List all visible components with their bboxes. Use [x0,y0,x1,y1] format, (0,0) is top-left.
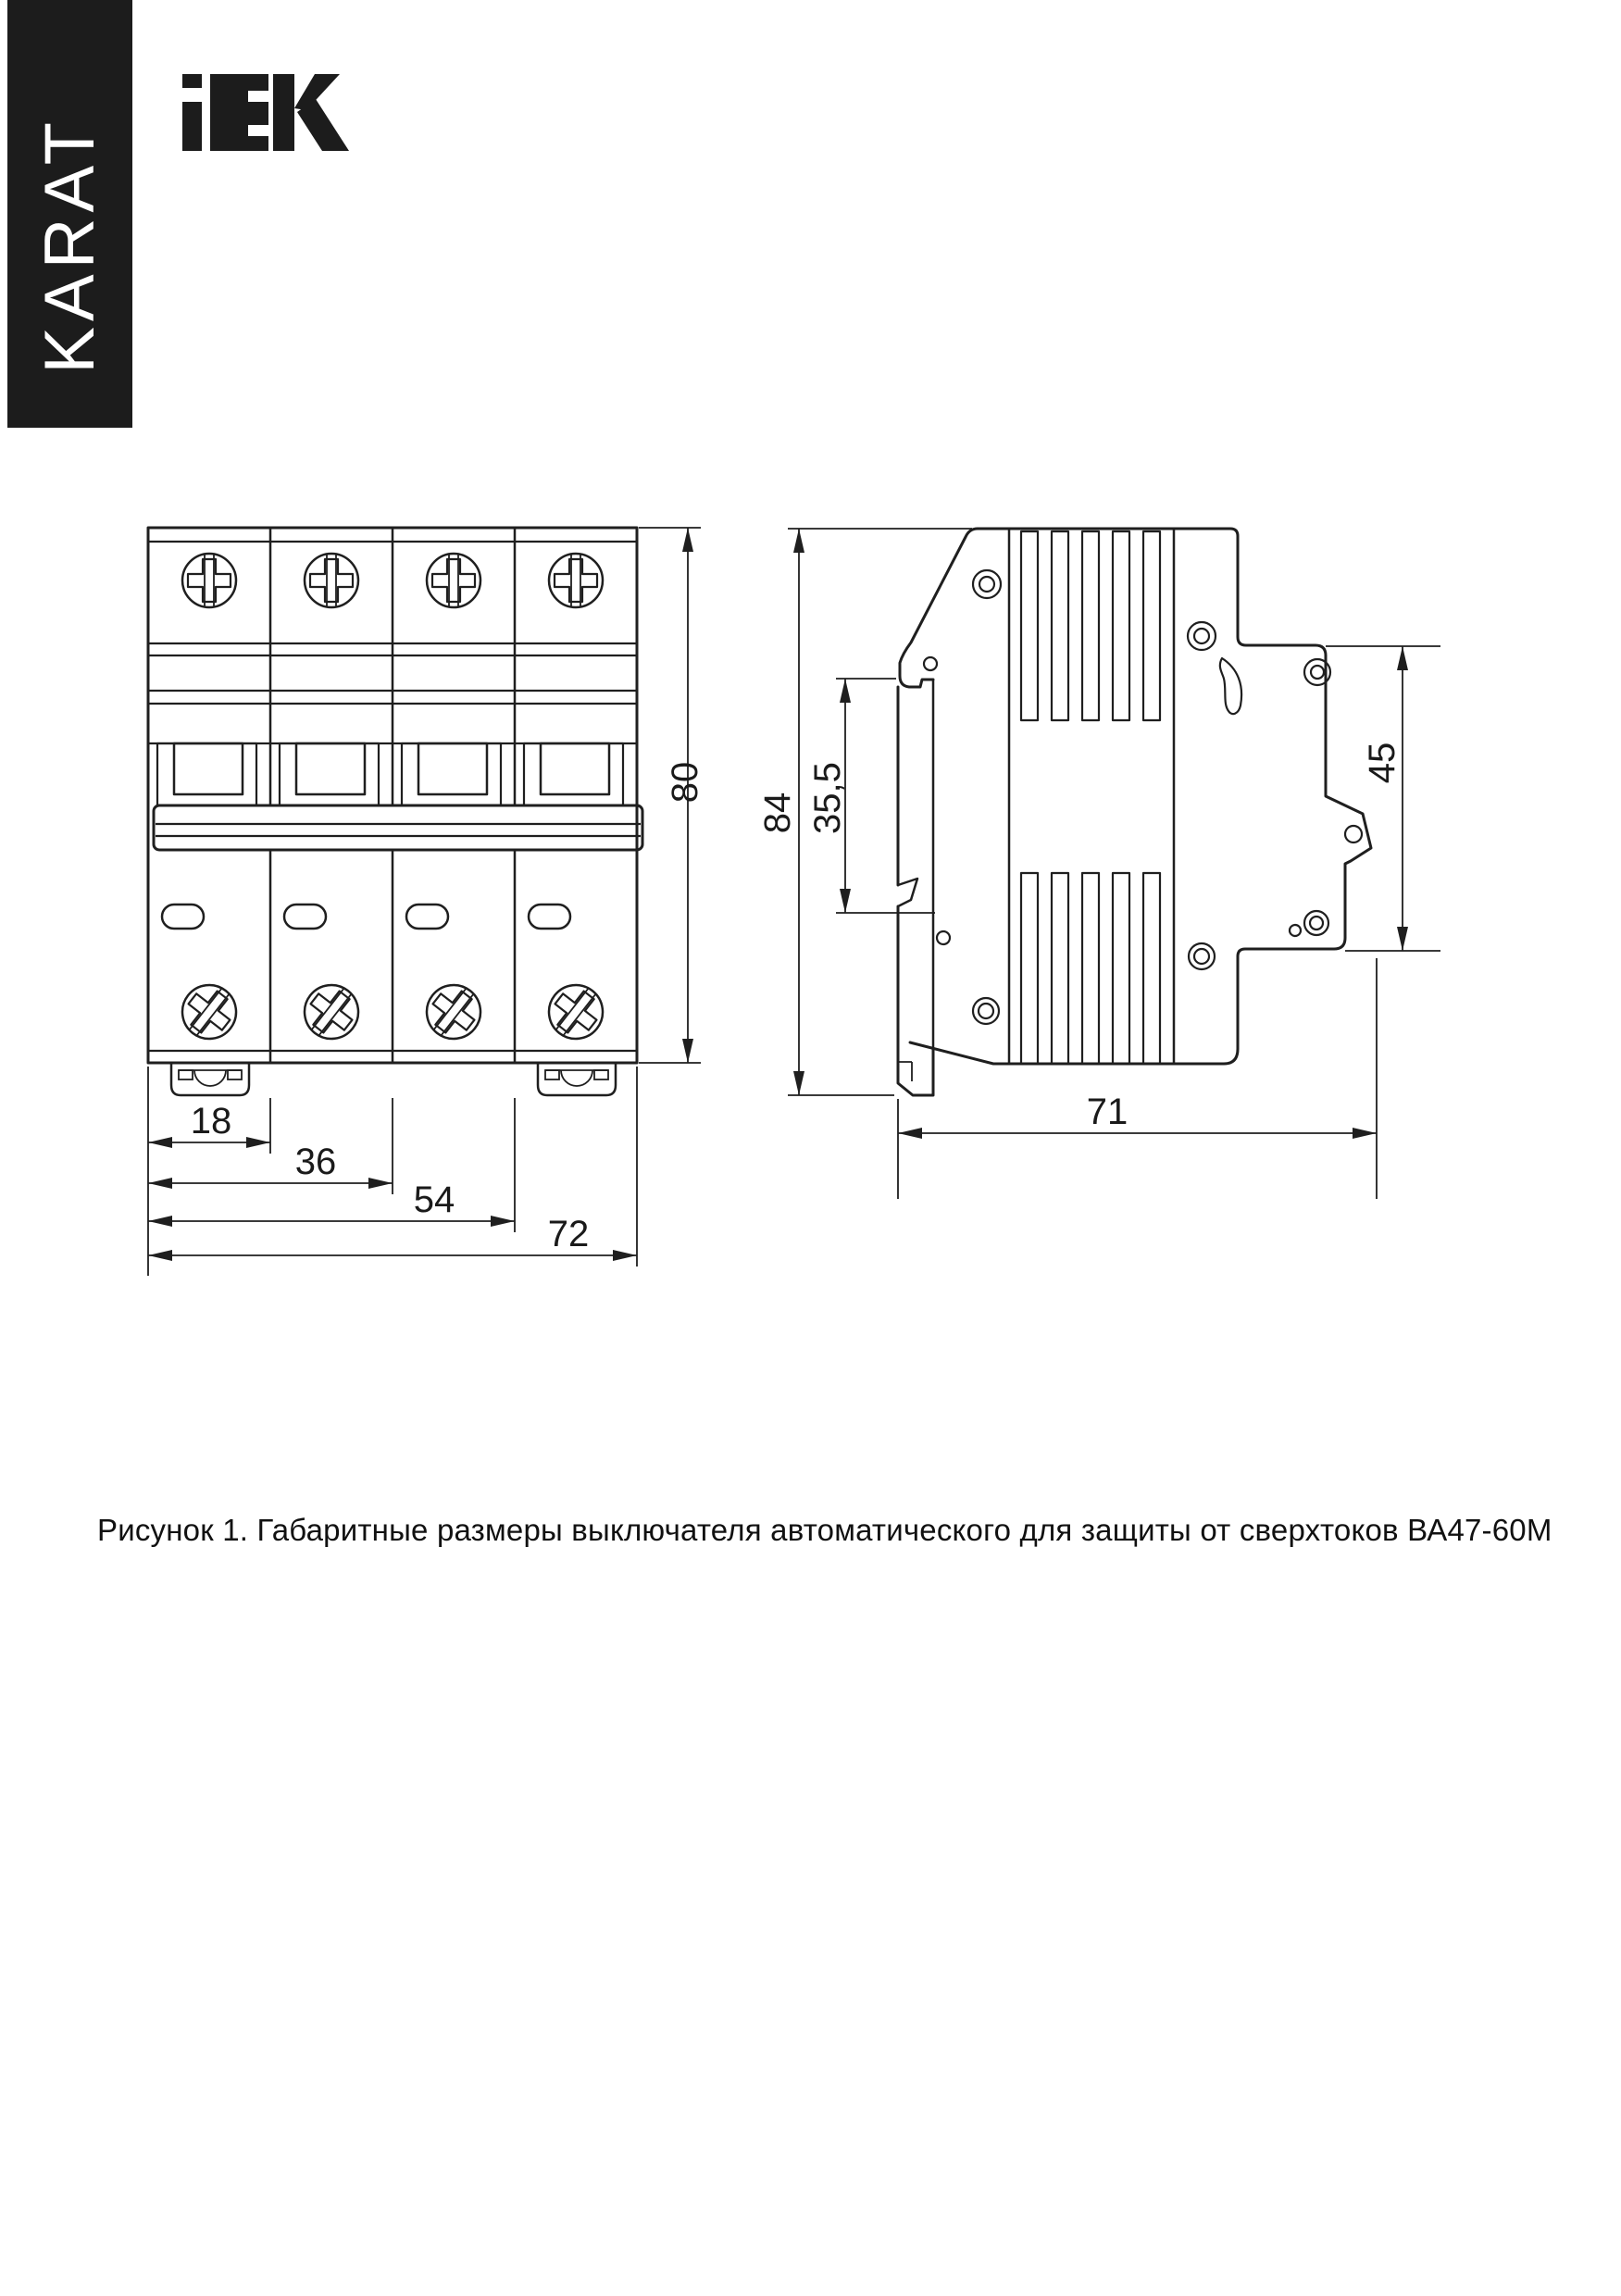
dim-label-18: 18 [191,1101,232,1142]
rivets [937,570,1362,1024]
dim-label-84: 84 [757,792,798,834]
side-view: 84 35,5 45 [757,529,1440,1199]
dim-label-71: 71 [1087,1092,1128,1132]
curved-vent-slot [1220,658,1241,714]
dim-rail-zone: 45 [1326,646,1440,951]
side-case-outline [910,529,1371,1064]
screw-icon [427,554,480,607]
screw-icon [538,974,613,1049]
figure-caption: Рисунок 1. Габаритные размеры выключател… [97,1513,1440,1548]
handle-tie-bar [154,805,642,850]
screw-icon [171,974,246,1049]
screw-icon [182,554,236,607]
indicator-windows [162,905,570,929]
side-toggle-lever [900,529,978,687]
dim-label-35-5: 35,5 [807,762,848,834]
dim-label-36: 36 [295,1142,337,1182]
document-page: KARAT [0,0,1621,2296]
dim-label-72: 72 [548,1214,590,1254]
vent-slats-lower [1021,873,1160,1064]
screw-icon [416,974,491,1049]
side-front-face [898,687,933,1095]
front-view: 80 18 36 54 72 [148,528,705,1276]
dimension-drawing: 80 18 36 54 72 [0,0,1621,2296]
dim-front-widths: 18 36 54 72 [148,1067,637,1276]
screw-icon [549,554,603,607]
din-seat-hook [898,879,917,906]
dim-handle-offset: 35,5 [807,679,935,913]
dim-label-45: 45 [1362,742,1403,784]
din-clips [171,1063,616,1095]
toggle-pivot-hole [924,657,937,670]
toggle-levers [157,743,623,805]
dim-depth: 71 [898,958,1377,1199]
dim-label-54: 54 [414,1179,455,1220]
dim-side-height: 84 [757,529,972,1095]
foot-detail [898,1062,912,1081]
dim-label-80: 80 [665,762,705,804]
dim-front-height: 80 [639,528,705,1063]
screw-icon [293,974,368,1049]
vent-slats-upper [1021,531,1160,720]
screw-icon [305,554,358,607]
